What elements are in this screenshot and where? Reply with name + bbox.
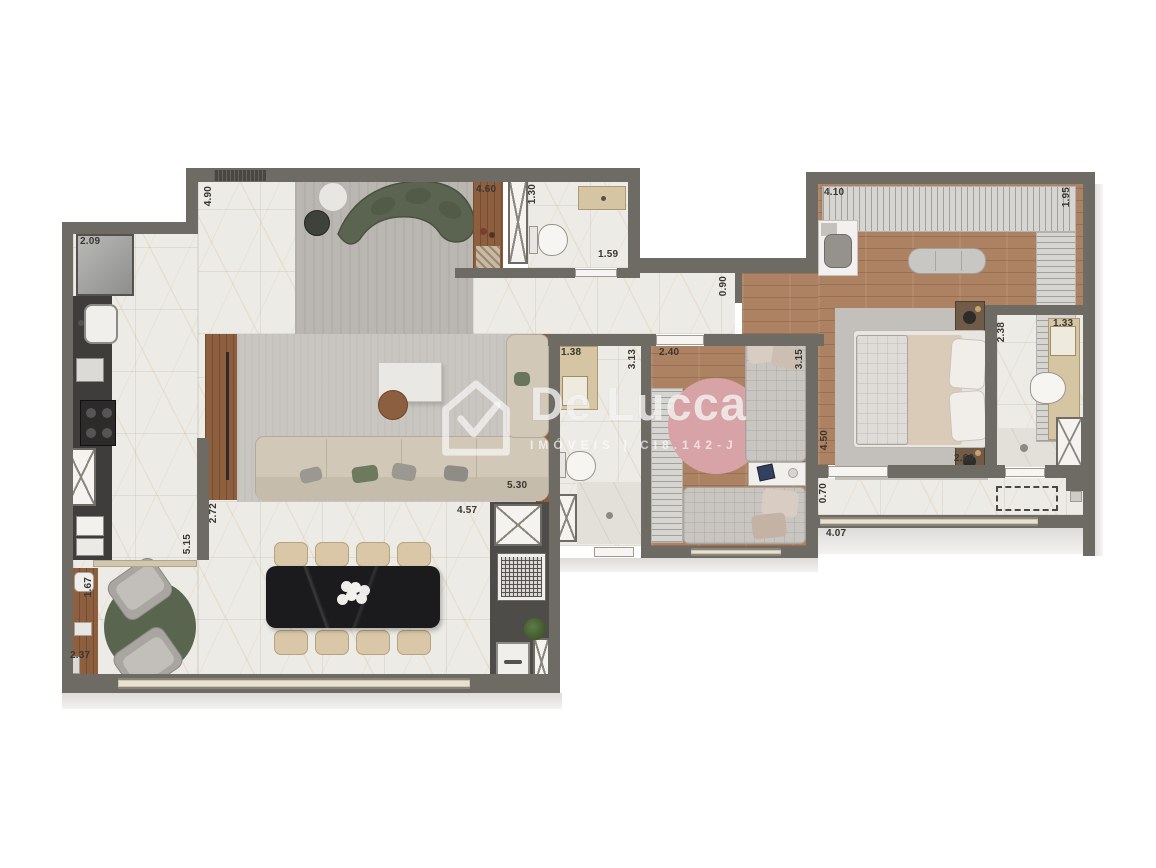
shaft-bathroom1 — [508, 180, 528, 264]
dining-chair — [356, 630, 390, 655]
entry-door-mat — [214, 170, 266, 181]
dimension-label: 4.50 — [820, 430, 830, 450]
window-living-dining — [118, 678, 470, 689]
door-sill-bathroom2 — [594, 547, 634, 557]
shower-drain-icon — [606, 512, 613, 519]
shaft-laundry — [494, 504, 542, 546]
dimension-label: 4.90 — [204, 186, 214, 206]
kitchen-sink — [84, 304, 118, 344]
dimension-label: 2.09 — [80, 237, 100, 247]
dimension-label: 5.15 — [183, 534, 193, 554]
wall — [806, 172, 1095, 184]
door-sill-bedroom2 — [656, 335, 704, 345]
dimension-label: 1.38 — [561, 348, 581, 358]
wall — [186, 168, 198, 230]
wall — [617, 268, 640, 278]
dimension-label: 1.59 — [598, 250, 618, 260]
tv-icon — [226, 352, 229, 480]
balcony-fixture — [1070, 491, 1082, 502]
door-sill-bathroom1 — [575, 269, 617, 277]
dimension-label: 1.33 — [1053, 319, 1073, 329]
window-bedroom2 — [691, 548, 781, 556]
toilet-tank — [529, 226, 538, 254]
nightstand — [955, 301, 985, 333]
dimension-label: 5.30 — [507, 481, 527, 491]
side-table-dark — [304, 210, 330, 236]
toilet-icon — [538, 224, 568, 256]
floor-plan: 2.094.904.601.301.594.101.950.901.383.13… — [0, 0, 1156, 868]
bar-console — [473, 182, 503, 270]
dining-chair — [315, 630, 349, 655]
wall — [806, 172, 818, 273]
dimension-label: 3.13 — [628, 349, 638, 369]
wall — [62, 222, 198, 234]
wall — [985, 305, 1083, 315]
dining-chair — [274, 542, 308, 567]
door-sill-master-bath — [1005, 468, 1045, 477]
desk-chair — [824, 234, 852, 268]
wall — [455, 268, 575, 278]
dimension-label: 0.70 — [819, 483, 829, 503]
dimension-label: 2.40 — [659, 348, 679, 358]
dimension-label: 4.07 — [826, 529, 846, 539]
basin-bathroom2 — [562, 376, 588, 406]
dimension-label: 2.37 — [70, 651, 90, 661]
burner-icon — [86, 408, 96, 418]
bench — [908, 248, 986, 274]
faucet-icon — [78, 320, 84, 326]
sofa-chaise — [506, 334, 549, 438]
exterior-shadow — [1095, 184, 1103, 556]
dimension-label: 1.95 — [1062, 187, 1072, 207]
wall — [888, 465, 1005, 478]
tv-panel — [205, 334, 237, 500]
decor-item — [788, 468, 798, 478]
wall — [197, 438, 209, 560]
dimension-label: 4.60 — [476, 185, 496, 195]
wall — [1083, 172, 1095, 556]
dimension-label: 1.67 — [84, 577, 94, 597]
wall — [548, 334, 651, 346]
drying-rack — [498, 554, 545, 600]
door-sill-balcony — [828, 466, 888, 477]
coffee-table-disc — [378, 390, 408, 420]
pillow — [948, 338, 987, 390]
faucet-icon — [601, 196, 606, 201]
floor-hallway — [473, 273, 735, 334]
vanity-bathroom1 — [578, 186, 626, 210]
threshold-strip — [93, 560, 197, 567]
wall — [549, 334, 560, 693]
pillow-gray — [443, 465, 468, 482]
plant-icon — [524, 618, 546, 640]
side-table-white — [318, 182, 348, 212]
wall — [640, 258, 810, 273]
exterior-shadow — [62, 693, 562, 709]
double-bed — [853, 330, 987, 448]
wall — [735, 273, 742, 303]
wall — [628, 168, 640, 278]
dining-chair — [315, 542, 349, 567]
ac-condenser-dashed-box — [996, 486, 1058, 511]
dining-chair — [274, 630, 308, 655]
wall — [1066, 478, 1083, 491]
closet-master-top — [822, 186, 1076, 232]
dimension-label: 2.60 — [954, 454, 974, 464]
cooktop — [80, 400, 116, 446]
pillow — [948, 390, 987, 442]
dimension-label: 1.30 — [528, 184, 538, 204]
shaft-master-bath — [1056, 417, 1083, 467]
dining-chair — [356, 542, 390, 567]
pillow-green — [514, 372, 530, 386]
pillow — [751, 512, 787, 539]
exterior-shadow — [806, 528, 1095, 554]
floor-suite-corridor — [742, 273, 818, 334]
kitchen-appliance — [76, 358, 104, 382]
dimension-label: 3.15 — [795, 349, 805, 369]
toilet-icon — [566, 451, 596, 481]
dimension-label: 4.57 — [457, 506, 477, 516]
dimension-label: 4.10 — [824, 188, 844, 198]
laundry-tub-1 — [76, 516, 104, 536]
decor-frame — [74, 622, 92, 636]
wall — [818, 465, 828, 478]
dimension-label: 0.90 — [719, 276, 729, 296]
wall — [1045, 465, 1083, 478]
toilet-icon — [1030, 372, 1066, 404]
wall — [62, 222, 73, 693]
flower-centerpiece — [346, 590, 357, 601]
dining-chair — [397, 542, 431, 567]
basin-master-bath — [1050, 326, 1076, 356]
dining-chair — [397, 630, 431, 655]
laundry-tub-2 — [76, 538, 104, 556]
window-balcony — [820, 517, 1038, 526]
wall — [641, 334, 651, 558]
curved-sofa — [328, 172, 480, 274]
exterior-shadow — [549, 558, 818, 572]
dimension-label: 2.38 — [997, 322, 1007, 342]
dimension-label: 2.72 — [209, 503, 219, 523]
shower-drain-icon — [1020, 444, 1028, 452]
